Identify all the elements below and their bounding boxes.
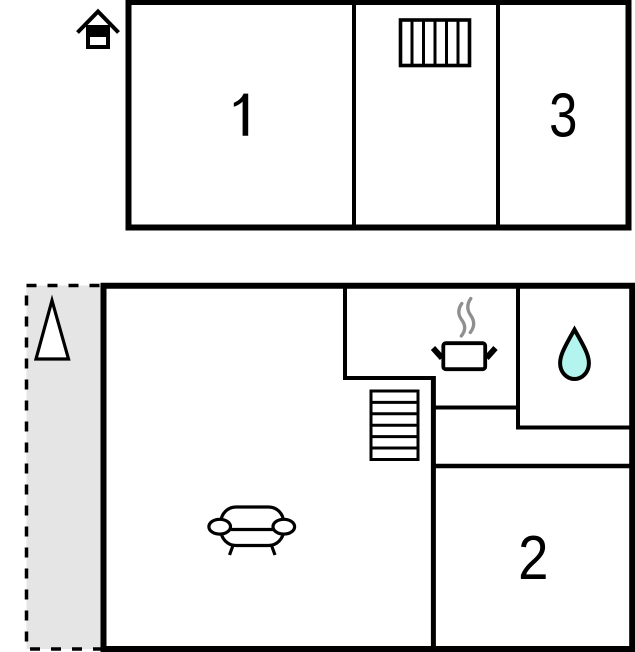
svg-text:3: 3 — [549, 82, 577, 151]
svg-text:2: 2 — [518, 524, 548, 593]
